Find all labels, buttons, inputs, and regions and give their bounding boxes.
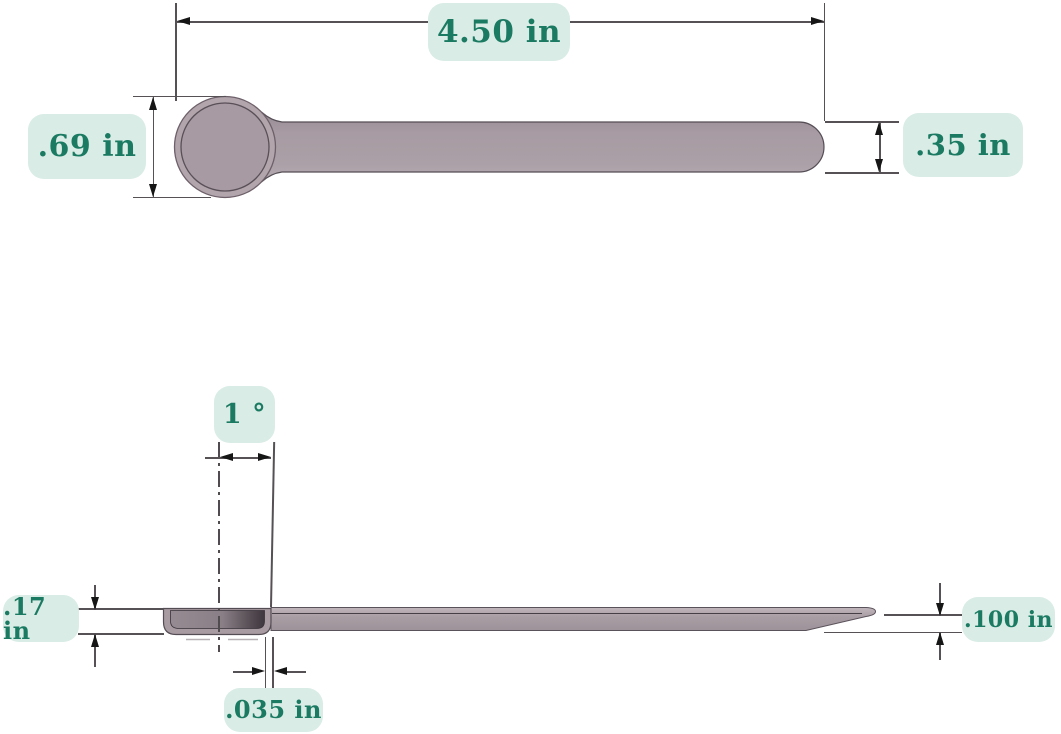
arrowhead-down: [875, 159, 883, 172]
arrowhead-right: [258, 453, 271, 461]
arrowhead-down: [936, 603, 944, 616]
dim-label-bowl-depth: .17 in: [3, 595, 79, 642]
extension-line: [133, 96, 226, 98]
arrowhead-right: [811, 17, 824, 25]
extension-line: [884, 614, 962, 616]
arrowhead-left: [220, 453, 233, 461]
spoon-views-layer: [0, 0, 1061, 734]
arrowhead-up: [91, 634, 99, 647]
spoon-top-handle: [249, 113, 824, 182]
extension-line: [825, 172, 899, 174]
dimension-line: [153, 97, 155, 197]
dim-label-draft-angle: 1 °: [214, 386, 275, 443]
arrowhead-left: [274, 667, 287, 675]
spoon-top-view: [175, 97, 824, 198]
spoon-side-view: [164, 608, 876, 640]
extension-line: [272, 637, 274, 688]
spoon-top-bowl-rim: [181, 103, 269, 191]
drawing-canvas: 4.50 in .69 in .35 in 1 ° .17 in: [0, 0, 1061, 734]
arrowhead-up: [875, 122, 883, 135]
arrowhead-down: [91, 597, 99, 610]
arrowhead-up: [936, 632, 944, 645]
leader-line: [286, 671, 306, 673]
dim-label-lip-thickness: .035 in: [224, 688, 323, 732]
extension-line: [825, 121, 899, 123]
arrowhead-right: [252, 667, 265, 675]
extension-line: [133, 197, 211, 199]
arrowhead-down: [149, 184, 157, 197]
arrowhead-left: [177, 17, 190, 25]
extension-line: [265, 637, 267, 688]
spoon-side-handle: [271, 608, 876, 631]
dim-label-handle-thickness: .100 in: [962, 597, 1055, 642]
dim-label-overall-length: 4.50 in: [428, 3, 570, 61]
bowl-centerline: [218, 442, 220, 652]
arrowhead-up: [149, 97, 157, 110]
dim-label-bowl-diameter: .69 in: [28, 114, 146, 179]
leader-line: [233, 671, 254, 673]
dim-label-handle-width: .35 in: [903, 113, 1023, 177]
